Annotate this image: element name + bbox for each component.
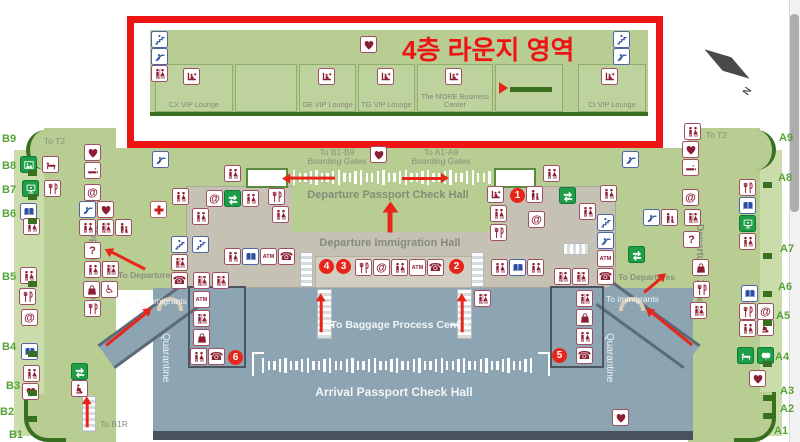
toilet-mf-icon [212,272,229,289]
boarding-gates-a-line2: Boarding Gates [401,156,481,166]
counter-tick [519,361,521,370]
atm-icon: ATM [597,250,614,267]
toilet-mf-icon [151,65,168,82]
toilet-mf-icon [576,290,593,307]
counter-tick [396,358,398,373]
counter-tick [371,173,373,182]
escalator-icon [643,209,660,226]
gate-label: A7 [780,243,794,255]
escalator-icon [622,151,639,168]
to-t2-label-right: To T2 [706,130,727,140]
lounge-area-title: 4층 라운지 영역 [402,30,642,67]
counter-tick [379,361,381,370]
aed-icon [360,36,377,53]
internet-icon: @ [757,303,774,320]
gate-label: B8 [2,160,16,172]
gate-tab [763,320,772,326]
counter-tick [401,361,403,370]
toilet-icon [600,185,617,202]
counter-tick [329,358,331,373]
boarding-direction-arrow-right [402,177,442,180]
numbered-marker-1: 1 [510,188,525,203]
counter-tick [360,170,362,185]
restaurant-icon [739,179,756,196]
gate-tab [763,361,772,367]
toilet-icon [190,348,207,365]
counter-tick [393,173,395,182]
information-icon: ? [683,231,700,248]
escalator-icon [613,48,630,65]
gate-tab [28,416,37,422]
toilet-icon [527,259,544,276]
to-t2-label-left: To T2 [44,136,65,146]
counter-tick [368,359,370,372]
numbered-marker-4: 4 [319,259,334,274]
baggage-escalator-arrow-left [320,300,323,332]
atm-icon: ATM [260,248,277,265]
gate-label: A6 [778,281,792,293]
counter-tick [362,361,364,370]
gate-label: B6 [2,208,16,220]
counter-tick [388,173,390,182]
counter-tick [338,170,340,185]
toilet-icon [192,208,209,225]
toilet-icon [739,320,756,337]
counter-tick [491,361,493,370]
toilet-icon [79,219,96,236]
smoking-icon [84,162,101,179]
counter-tick [351,358,353,373]
counter-tick [385,361,387,370]
gate-label: A1 [774,425,788,437]
toilet-mf-icon [97,219,114,236]
gate-label: B5 [2,271,16,283]
gate-label: A2 [780,403,794,415]
toilet-icon [23,365,40,382]
counter-tick [474,361,476,370]
aed-icon [612,409,629,426]
gate-label: B1 [9,429,23,441]
gate-label: B9 [2,133,16,145]
counter-tick [488,171,490,184]
restaurant-icon [490,224,507,241]
telephone-icon: ☎ [427,259,444,276]
medical-icon [150,201,167,218]
counter-tick [335,361,337,370]
counter-tick [477,173,479,182]
telephone-icon: ☎ [278,248,295,265]
internet-icon: @ [528,211,545,228]
to-immigrants-label-right: To immigrants [606,294,659,304]
gate-label: B4 [2,341,16,353]
arrival-passport-hall-label: Arrival Passport Check Hall [310,385,478,399]
money-exchange-icon [71,363,88,380]
nursery-icon [661,209,678,226]
counter-tick [483,173,485,182]
toilet-icon [224,248,241,265]
counter-tick [418,358,420,373]
internet-icon: @ [84,184,101,201]
gate-tab [763,253,772,259]
escalator-icon [597,232,614,249]
counter-tick [301,359,303,372]
counter-tick [513,361,515,370]
restaurant-icon [693,281,710,298]
library-icon [741,285,758,302]
counter-tick [524,359,526,372]
toilet-mf-icon [102,261,119,278]
counter-tick [377,171,379,184]
stairs-icon [613,31,630,48]
aed-icon [749,370,766,387]
baggage-escalator-arrow-right [461,300,464,332]
gate-label: A3 [780,385,794,397]
atm-icon: ATM [409,259,426,276]
numbered-marker-6: 6 [228,350,243,365]
telephone-icon: ☎ [597,268,614,285]
restaurant-icon [19,288,36,305]
counter-tick [374,358,376,373]
to-b1r-label: To B1R [100,419,128,429]
gate-tab [763,413,772,419]
library-icon [242,248,259,265]
gate-label: B2 [0,406,14,418]
counter-tick [284,358,286,373]
telephone-icon: ☎ [208,348,225,365]
gate-tab [763,395,772,401]
escalator-icon [151,48,168,65]
toilet-icon [490,205,507,222]
toilet-mf-icon [193,310,210,327]
smoking-icon [682,159,699,176]
vip-lounge-icon [318,68,335,85]
media-room-icon [739,215,756,232]
toilet-icon [579,203,596,220]
toilet-icon [739,233,756,250]
security-gate-right [494,168,536,188]
library-icon [509,259,526,276]
toilet-icon [272,206,289,223]
toilet-icon [172,188,189,205]
vip-lounge-icon [487,186,504,203]
counter-tick [424,361,426,370]
counter-tick [468,361,470,370]
money-exchange-icon [224,190,241,207]
boarding-gates-b-line2: Boarding Gates [297,156,377,166]
counter-tick [382,170,384,185]
restaurant-icon [739,303,756,320]
numbered-marker-5: 5 [552,348,567,363]
counter-tick [343,173,345,182]
toilet-icon [543,165,560,182]
toilet-icon [684,123,701,140]
internet-icon: @ [206,190,223,207]
vip-lounge-icon [601,68,618,85]
toilet-icon [576,328,593,345]
arrival-check-counters [262,355,539,375]
vip-lounge-icon [183,68,200,85]
prayer-room-icon [71,380,88,397]
counter-tick [441,358,443,373]
departure-passport-hall-label: Departure Passport Check Hall [300,189,476,201]
toilet-mf-icon [171,254,188,271]
aed-icon [97,201,114,218]
gate-tab [28,281,37,287]
counter-tick [452,361,454,370]
money-exchange-icon [628,246,645,263]
escalator-shaft-left-upper [300,252,313,287]
numbered-marker-2: 2 [449,259,464,274]
restaurant-icon [44,180,61,197]
library-icon [739,197,756,214]
counter-tick [485,358,487,373]
immigration-up-arrow [388,211,393,233]
gate-tab [28,390,37,396]
counter-tick [354,171,356,184]
counter-tick [463,358,465,373]
toilet-icon [491,259,508,276]
massage-icon [42,156,59,173]
counter-tick [390,359,392,372]
aed-icon [84,144,101,161]
counter-tick [460,173,462,182]
toilet-mf-icon [554,268,571,285]
counter-tick [279,359,281,372]
vip-lounge-icon [377,68,394,85]
counter-tick [446,361,448,370]
counter-tick [496,361,498,370]
compass-needle-icon [700,43,754,86]
nursery-icon [115,219,132,236]
stairs-icon [192,236,209,253]
nursery-icon [526,186,543,203]
counter-tick [307,358,309,373]
toilet-icon [391,259,408,276]
arrival-bracket-left [252,352,264,376]
duty-free-shop-icon [83,281,100,298]
duty-free-shop-icon [576,309,593,326]
internet-icon: @ [373,259,390,276]
arrival-bracket-right [538,352,550,376]
aed-icon [370,146,387,163]
restaurant-icon [355,259,372,276]
counter-tick [318,361,320,370]
toilet-icon [224,165,241,182]
arrival-hall-bottom-edge [153,431,693,440]
counter-tick [273,361,275,370]
money-exchange-icon [559,187,576,204]
counter-tick [455,173,457,182]
quarantine-label-right: Quarantine [604,306,615,410]
vent-hatch [563,243,589,255]
counter-tick [429,361,431,370]
telephone-icon: ☎ [171,272,188,289]
escalator-icon [152,151,169,168]
counter-tick [507,358,509,373]
toilet-icon [242,190,259,207]
aed-icon [682,141,699,158]
internet-icon: @ [682,189,699,206]
toilet-mf-icon [684,209,701,226]
gate-label: A5 [776,310,790,322]
restaurant-icon [84,300,101,317]
counter-tick [472,170,474,185]
counter-tick [480,359,482,372]
counter-tick [290,361,292,370]
gate-tab [28,351,37,357]
toilet-icon [84,261,101,278]
counter-tick [268,361,270,370]
baggage-center-label: To Baggage Process Center [330,319,470,331]
gate-label: A9 [779,132,793,144]
duty-free-shop-icon [692,259,709,276]
escalator-shaft-right-upper [471,252,484,287]
quarantine-label-left: Quarantine [160,306,171,410]
counter-tick [312,361,314,370]
toilet-mf-icon [474,290,491,307]
escalator-icon [79,201,96,218]
vip-lounge-icon [445,68,462,85]
gate-label: A8 [778,172,792,184]
gate-tab [763,291,772,297]
counter-tick [449,170,451,185]
counter-tick [357,361,359,370]
gate-label: B3 [6,380,20,392]
internet-icon: @ [21,309,38,326]
telephone-icon: ☎ [576,347,593,364]
counter-tick [466,171,468,184]
counter-tick [457,359,459,372]
stairs-icon [171,236,188,253]
counter-tick [346,359,348,372]
toilet-mf-icon [572,268,589,285]
counter-tick [530,358,532,373]
counter-tick [366,173,368,182]
departure-immigration-hall-label: Departure Immigration Hall [300,237,480,249]
gate-tab [763,182,772,188]
wheelchair-icon: ♿ [101,281,118,298]
counter-tick [340,361,342,370]
gate-tab [28,218,37,224]
compass-north-label: N [741,85,754,97]
gate-label: A4 [775,351,789,363]
boarding-direction-arrow-left [289,177,335,180]
stairs-icon [597,214,614,231]
airport-floor-map: CX VIP Lounge GE VIP Lounge TG VIP Loung… [0,0,800,442]
to-departures-label-left: To Departures [118,270,175,280]
gate-tab [28,170,37,176]
toilet-mf-icon [193,272,210,289]
massage-icon [737,347,754,364]
counter-tick [349,173,351,182]
restaurant-icon [268,188,285,205]
counter-tick [502,359,504,372]
counter-tick [413,359,415,372]
stairs-icon [151,31,168,48]
gate-tab [28,194,37,200]
duty-free-shop-icon [193,329,210,346]
atm-icon: ATM [193,291,210,308]
counter-tick [295,361,297,370]
b1r-escalator-arrow [86,403,89,427]
information-icon: ? [84,242,101,259]
numbered-marker-3: 3 [336,259,351,274]
counter-tick [407,361,409,370]
to-immigrants-label-left: To immigrants [134,296,187,306]
counter-tick [323,359,325,372]
toilet-mf-icon [690,302,707,319]
gate-label: B7 [2,184,16,196]
counter-tick [435,359,437,372]
